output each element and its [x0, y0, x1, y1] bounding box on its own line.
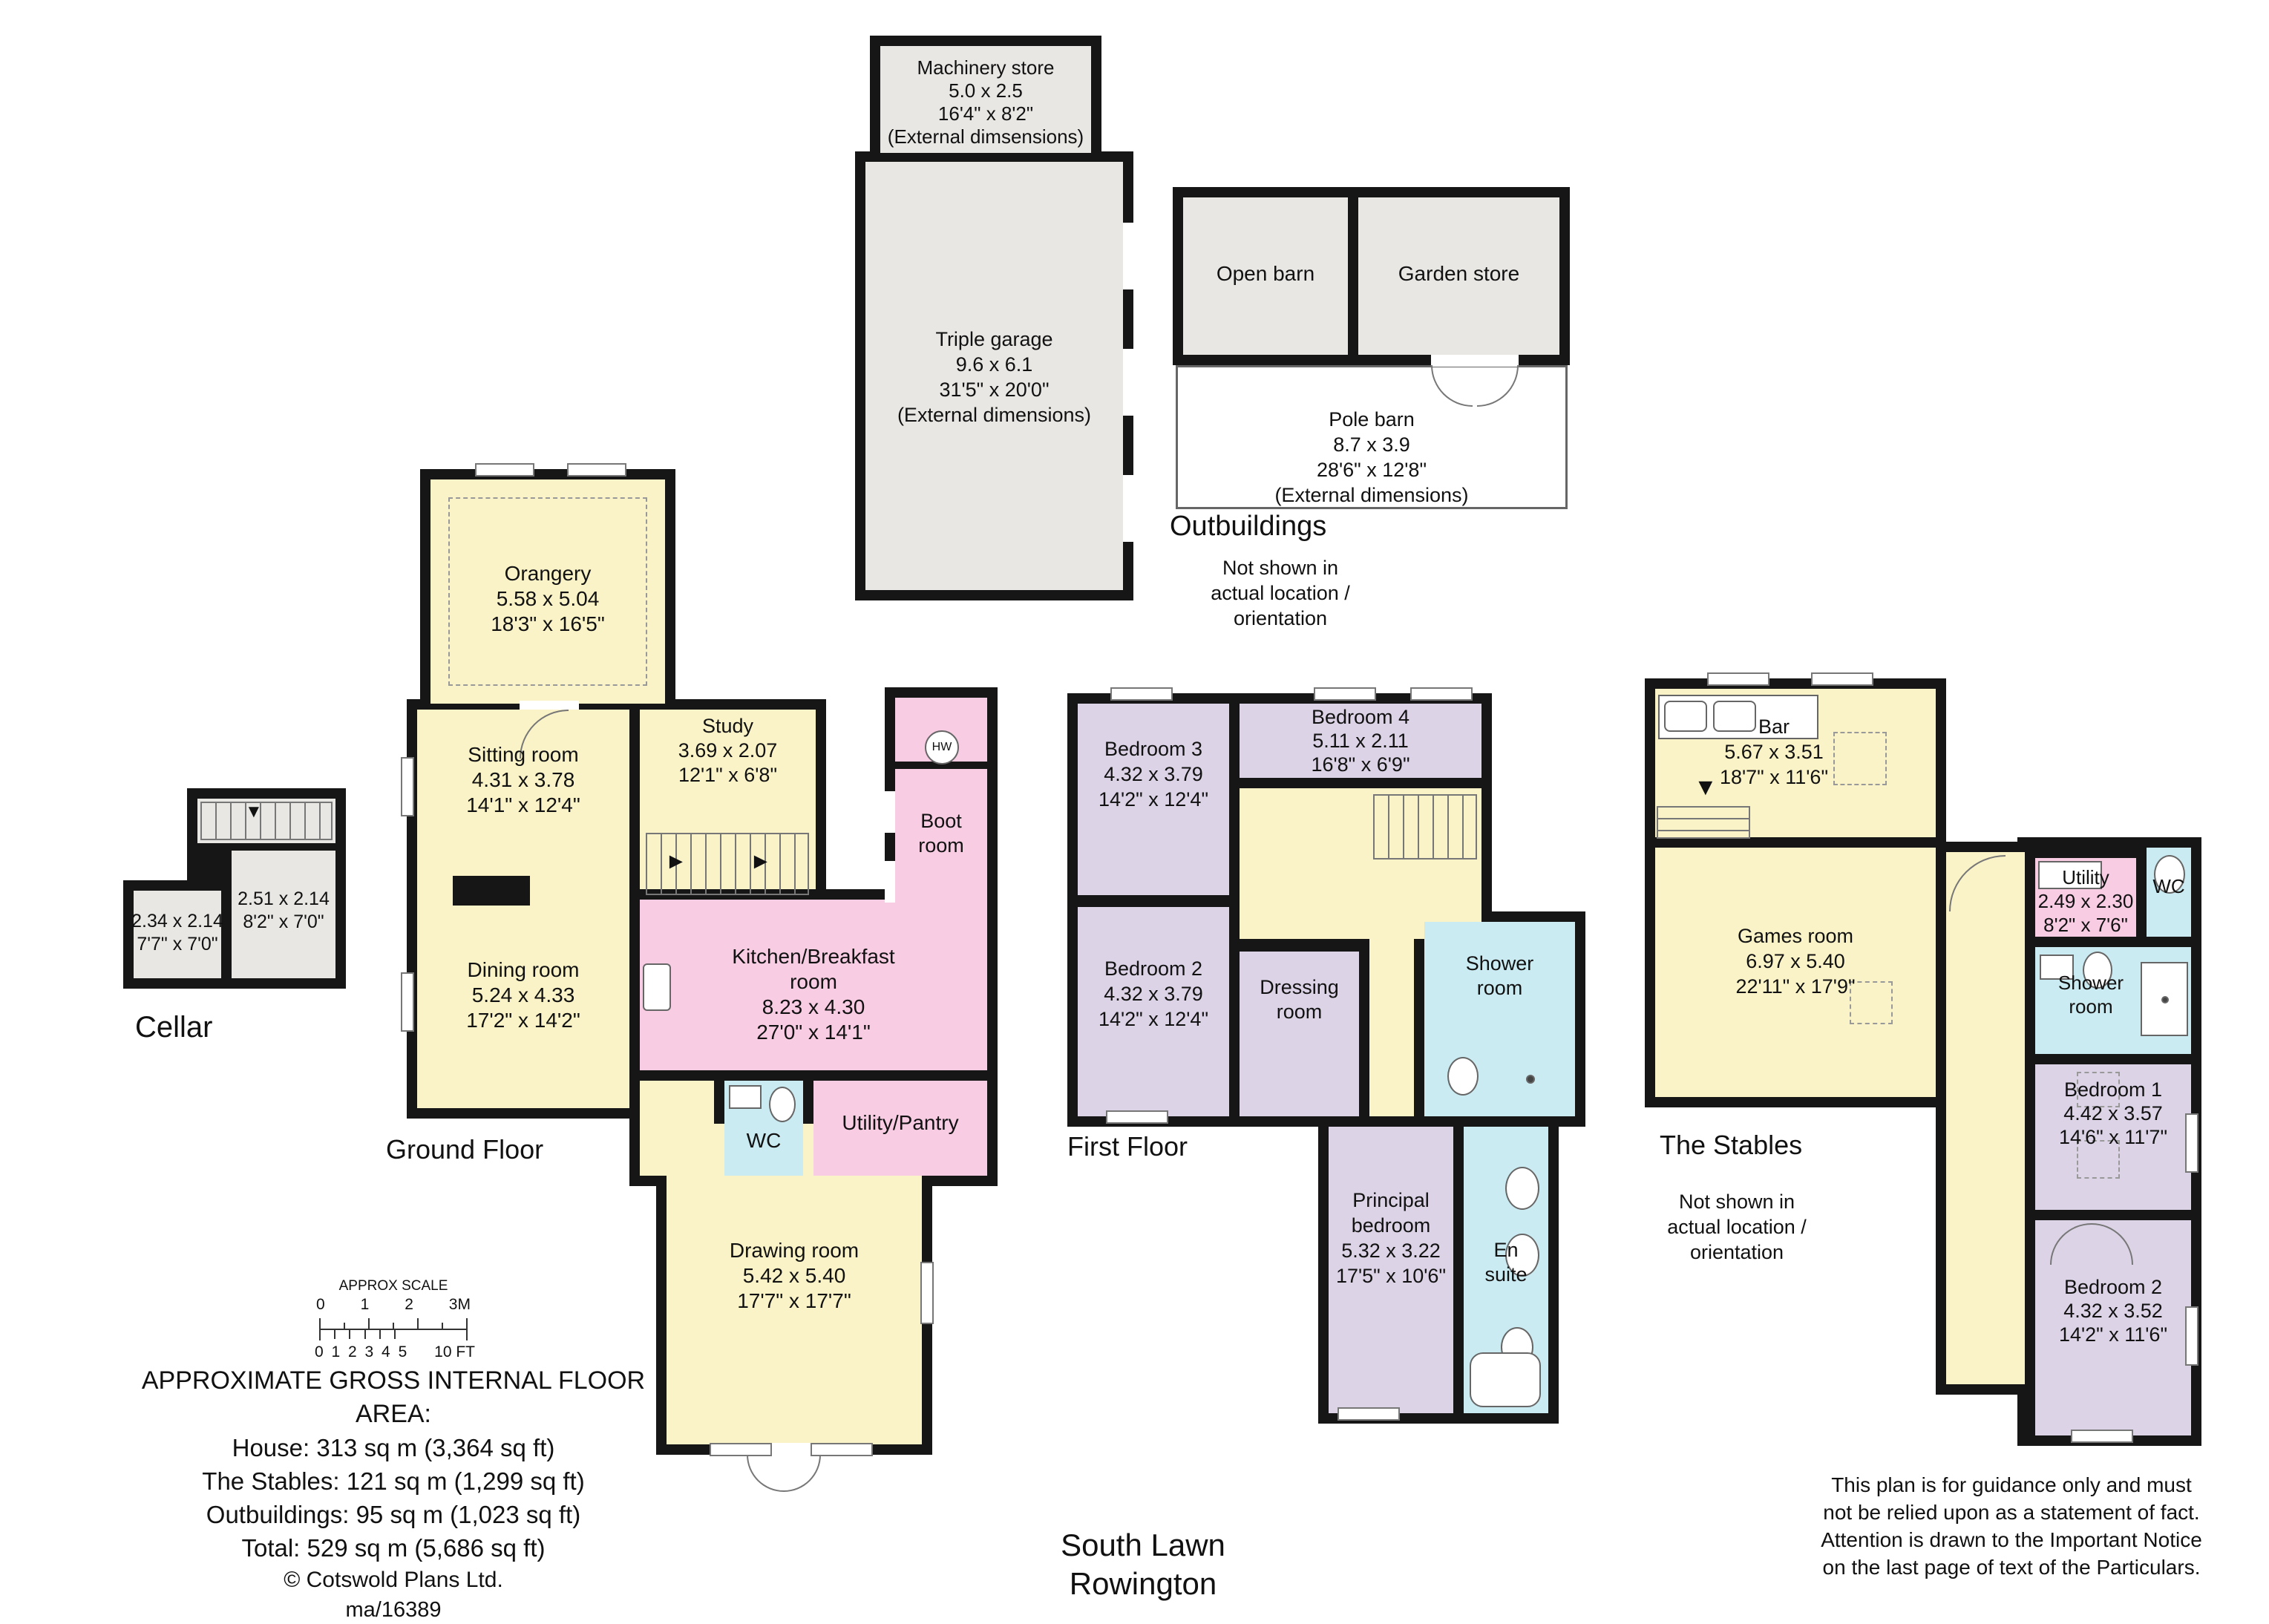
window: [1106, 1110, 1168, 1124]
label-shower-st: Shower room: [2035, 971, 2147, 1018]
scale-metric-numbers: 0 1 2 3M: [316, 1296, 471, 1314]
dims-m: 8.23 x 4.30: [640, 995, 987, 1020]
label-cellar-right: 2.51 x 2.14 8'2" x 7'0": [232, 888, 335, 934]
area-heading: APPROXIMATE GROSS INTERNAL FLOOR AREA:: [104, 1364, 683, 1431]
window: [920, 1262, 934, 1324]
tick-1: 1: [361, 1296, 370, 1314]
scale-title-text: APPROX SCALE: [319, 1278, 468, 1294]
dims-ft: 31'5" x 20'0": [865, 377, 1123, 402]
label-orangery: Orangery 5.58 x 5.04 18'3" x 16'5": [430, 561, 665, 637]
label-dining-room: Dining room 5.24 x 4.33 17'2" x 14'2": [417, 957, 629, 1033]
window: [1707, 672, 1769, 686]
door-arc: [747, 1455, 784, 1492]
window: [2071, 1430, 2133, 1443]
door-gap-boot-b: [885, 861, 895, 903]
note-outbuildings: Not shown in actual location / orientati…: [1180, 555, 1381, 631]
label-games-room: Games room 6.97 x 5.40 22'11" x 17'9": [1655, 923, 1936, 999]
dims-m: 4.32 x 3.79: [1078, 981, 1229, 1006]
dims-ft: 17'2" x 14'2": [417, 1008, 629, 1033]
dims-m: 4.32 x 3.79: [1078, 762, 1229, 787]
label-bedroom2-ff: Bedroom 2 4.32 x 3.79 14'2" x 12'4": [1078, 956, 1229, 1032]
ensuite-bath-icon: [1470, 1352, 1541, 1407]
label-bedroom1-st: Bedroom 1 4.42 x 3.57 14'6" x 11'7": [2035, 1078, 2191, 1149]
room-boot: [895, 698, 987, 903]
label-utility-st: Utility 2.49 x 2.30 8'2" x 7'6": [2035, 865, 2136, 937]
room-name: Dressing room: [1240, 975, 1359, 1024]
label-garden-store: Garden store: [1358, 261, 1559, 286]
dims-ft: 7'7" x 7'0": [125, 933, 230, 956]
room-name: WC: [2147, 874, 2191, 899]
stairs-up-arrow2-icon: ►: [750, 851, 772, 873]
window: [475, 463, 534, 477]
note-stables: Not shown in actual location / orientati…: [1655, 1189, 1818, 1265]
dims-m: 2.34 x 2.14: [125, 910, 230, 933]
room-name: Bedroom 3: [1078, 736, 1229, 762]
dims-m: 5.11 x 2.11: [1240, 729, 1481, 753]
ff-hall-strip: [1369, 922, 1414, 1116]
window: [1410, 687, 1473, 701]
dims-m: 4.42 x 3.57: [2035, 1101, 2191, 1125]
label-cellar-left: 2.34 x 2.14 7'7" x 7'0": [125, 910, 230, 956]
stairs-first-floor: [1373, 794, 1477, 860]
bar-steps: [1657, 806, 1750, 839]
dims-m: 5.67 x 3.51: [1700, 739, 1848, 764]
dims-ft: 16'8" x 6'9": [1240, 753, 1481, 776]
dims-note: (External dimensions): [1176, 482, 1568, 508]
room-name: Utility/Pantry: [813, 1110, 987, 1135]
area-line-stables: The Stables: 121 sq m (1,299 sq ft): [104, 1464, 683, 1498]
room-name: Open barn: [1183, 261, 1348, 286]
label-triple-garage: Triple garage 9.6 x 6.1 31'5" x 20'0" (E…: [865, 327, 1123, 428]
tick-0: 0: [316, 1296, 325, 1314]
label-bedroom2-st: Bedroom 2 4.32 x 3.52 14'2" x 11'6": [2035, 1275, 2191, 1346]
scale-ft-numbers: 0 1 2 3 4 5 10 FT: [315, 1343, 475, 1361]
dims-m: 2.49 x 2.30: [2035, 889, 2136, 913]
label-bedroom4: Bedroom 4 5.11 x 2.11 16'8" x 6'9": [1240, 705, 1481, 776]
door-gap-boot-a: [885, 791, 895, 833]
room-name: Games room: [1655, 923, 1936, 949]
dims-note: (External dimensions): [865, 402, 1123, 428]
heading-first-floor: First Floor: [1067, 1131, 1188, 1162]
window: [1314, 687, 1376, 701]
showerff-toilet-icon: [1447, 1057, 1479, 1096]
room-name: Bar: [1700, 714, 1848, 739]
copyright: © Cotswold Plans Ltd.: [104, 1565, 683, 1596]
dims-ft: 27'0" x 14'1": [640, 1020, 987, 1045]
disclaimer-text: This plan is for guidance only and must …: [1796, 1471, 2227, 1581]
note-text: Not shown in actual location / orientati…: [1180, 555, 1381, 631]
garage-door-b: [1123, 349, 1133, 416]
dims-note: (External dimsensions): [880, 125, 1091, 148]
dims-m: 4.31 x 3.78: [417, 767, 629, 793]
dims-m: 8.7 x 3.9: [1176, 432, 1568, 457]
stables-corridor: [1946, 852, 2025, 1384]
label-study: Study 3.69 x 2.07 12'1" x 6'8": [640, 714, 816, 788]
label-machinery-store: Machinery store 5.0 x 2.5 16'4" x 8'2" (…: [880, 56, 1091, 148]
wc-toilet-icon: [769, 1087, 796, 1122]
plan-ref: ma/16389: [104, 1596, 683, 1624]
shower-drain-icon: [2161, 996, 2169, 1003]
dims-ft: 28'6" x 12'8": [1176, 457, 1568, 482]
room-name: Triple garage: [865, 327, 1123, 352]
dims-m: 5.42 x 5.40: [667, 1263, 922, 1289]
scale-ruler: [319, 1318, 468, 1340]
dims-ft: 17'7" x 17'7": [667, 1289, 922, 1314]
wc-basin-icon: [729, 1085, 762, 1109]
room-name: WC: [724, 1128, 803, 1153]
room-name: Bedroom 2: [2035, 1275, 2191, 1299]
room-name: Shower room: [2035, 971, 2147, 1018]
showerst-tray-icon: [2141, 962, 2188, 1036]
window: [567, 463, 626, 477]
dims-m: 3.69 x 2.07: [640, 739, 816, 763]
dims-m: 5.58 x 5.04: [430, 586, 665, 612]
room-name: Sitting room: [417, 742, 629, 767]
room-name: Bedroom 4: [1240, 705, 1481, 729]
garage-door-a: [1123, 223, 1133, 289]
heading-ground-floor: Ground Floor: [386, 1134, 543, 1165]
dims-ft: 17'5" x 10'6": [1329, 1263, 1453, 1289]
dims-m: 5.32 x 3.22: [1329, 1238, 1453, 1263]
room-name: Study: [640, 714, 816, 739]
room-name: Orangery: [430, 561, 665, 586]
stairs-cellar: [200, 802, 333, 840]
dims-ft: 22'11" x 17'9": [1655, 974, 1936, 999]
label-wc-gf: WC: [724, 1128, 803, 1153]
dims-m: 5.24 x 4.33: [417, 983, 629, 1008]
hw-label: HW: [932, 741, 952, 754]
dims-m: 6.97 x 5.40: [1655, 949, 1936, 974]
area-summary: APPROXIMATE GROSS INTERNAL FLOOR AREA: H…: [104, 1364, 683, 1624]
room-name: Bedroom 2: [1078, 956, 1229, 981]
area-line-house: House: 313 sq m (3,364 sq ft): [104, 1431, 683, 1464]
window: [401, 757, 414, 816]
dims-ft: 14'2" x 11'6": [2035, 1323, 2191, 1346]
label-pole-barn: Pole barn 8.7 x 3.9 28'6" x 12'8" (Exter…: [1176, 407, 1568, 508]
label-utility-pantry: Utility/Pantry: [813, 1110, 987, 1135]
room-name: Shower room: [1424, 952, 1575, 1001]
room-name: Drawing room: [667, 1238, 922, 1263]
room-name: Utility: [2035, 865, 2136, 889]
window: [401, 972, 414, 1032]
ensuite-basin1-icon: [1505, 1167, 1539, 1210]
label-ensuite: En suite: [1464, 1238, 1548, 1287]
showerff-drain-icon: [1526, 1075, 1535, 1084]
label-dressing: Dressing room: [1240, 975, 1359, 1024]
garage-door-c: [1123, 475, 1133, 542]
dims-ft: 18'3" x 16'5": [430, 612, 665, 637]
tick-2: 2: [405, 1296, 413, 1314]
label-boot-room: Boot room: [895, 809, 987, 858]
dims-ft: 12'1" x 6'8": [640, 763, 816, 788]
cellar-arrow-icon: ▼: [245, 803, 263, 821]
dims-m: 4.32 x 3.52: [2035, 1299, 2191, 1323]
room-name: Garden store: [1358, 261, 1559, 286]
label-open-barn: Open barn: [1183, 261, 1348, 286]
room-name: Dining room: [417, 957, 629, 983]
floorplan-page: { "colors":{"wall":"#161616","yellow":"#…: [0, 0, 2269, 1603]
heading-the-stables: The Stables: [1660, 1130, 1802, 1161]
dims-ft: 8'2" x 7'6": [2035, 913, 2136, 937]
room-name: Kitchen/Breakfast room: [640, 944, 987, 995]
fireplace: [453, 876, 530, 906]
dims-ft: 8'2" x 7'0": [232, 911, 335, 934]
label-bedroom3: Bedroom 3 4.32 x 3.79 14'2" x 12'4": [1078, 736, 1229, 812]
room-name: Pole barn: [1176, 407, 1568, 432]
door-gap-orangery: [520, 701, 579, 710]
dims-m: 9.6 x 6.1: [865, 352, 1123, 377]
title-text: South Lawn Rowington: [1009, 1526, 1277, 1603]
window: [1110, 687, 1173, 701]
tick-3: 3M: [449, 1296, 471, 1314]
dims-m: 5.0 x 2.5: [880, 79, 1091, 102]
dims-ft: 14'2" x 12'4": [1078, 1006, 1229, 1032]
dims-ft: 14'6" x 11'7": [2035, 1125, 2191, 1149]
stairs-up-arrow-icon: ►: [665, 851, 687, 873]
dims-ft: 16'4" x 8'2": [880, 102, 1091, 125]
label-bar: Bar 5.67 x 3.51 18'7" x 11'6": [1700, 714, 1848, 790]
label-sitting-room: Sitting room 4.31 x 3.78 14'1" x 12'4": [417, 742, 629, 818]
dims-ft: 18'7" x 11'6": [1700, 764, 1848, 790]
area-line-total: Total: 529 sq m (5,686 sq ft): [104, 1531, 683, 1565]
page-title: South Lawn Rowington: [1009, 1526, 1277, 1603]
room-name: Machinery store: [880, 56, 1091, 79]
window: [1338, 1407, 1400, 1421]
door-arc: [784, 1455, 821, 1492]
ft-right: 10 FT: [434, 1343, 475, 1361]
label-drawing-room: Drawing room 5.42 x 5.40 17'7" x 17'7": [667, 1238, 922, 1314]
room-name: Bedroom 1: [2035, 1078, 2191, 1101]
scale-title: APPROX SCALE: [319, 1278, 468, 1294]
dims-ft: 14'1" x 12'4": [417, 793, 629, 818]
room-name: Principal bedroom: [1329, 1188, 1453, 1238]
note-text: Not shown in actual location / orientati…: [1655, 1189, 1818, 1265]
dims-m: 2.51 x 2.14: [232, 888, 335, 911]
label-shower-ff: Shower room: [1424, 952, 1575, 1001]
heading-outbuildings: Outbuildings: [1170, 511, 1326, 543]
window: [1811, 672, 1873, 686]
label-kitchen: Kitchen/Breakfast room 8.23 x 4.30 27'0"…: [640, 944, 987, 1045]
heading-cellar: Cellar: [135, 1011, 212, 1044]
ft-left: 0 1 2 3 4 5: [315, 1343, 407, 1361]
label-wc-st: WC: [2147, 874, 2191, 899]
dims-ft: 14'2" x 12'4": [1078, 787, 1229, 812]
disclaimer: This plan is for guidance only and must …: [1796, 1471, 2227, 1581]
label-principal: Principal bedroom 5.32 x 3.22 17'5" x 10…: [1329, 1188, 1453, 1289]
room-name: En suite: [1464, 1238, 1548, 1287]
hw-cylinder-icon: HW: [925, 730, 959, 764]
area-line-outbuildings: Outbuildings: 95 sq m (1,023 sq ft): [104, 1498, 683, 1531]
room-name: Boot room: [895, 809, 987, 858]
